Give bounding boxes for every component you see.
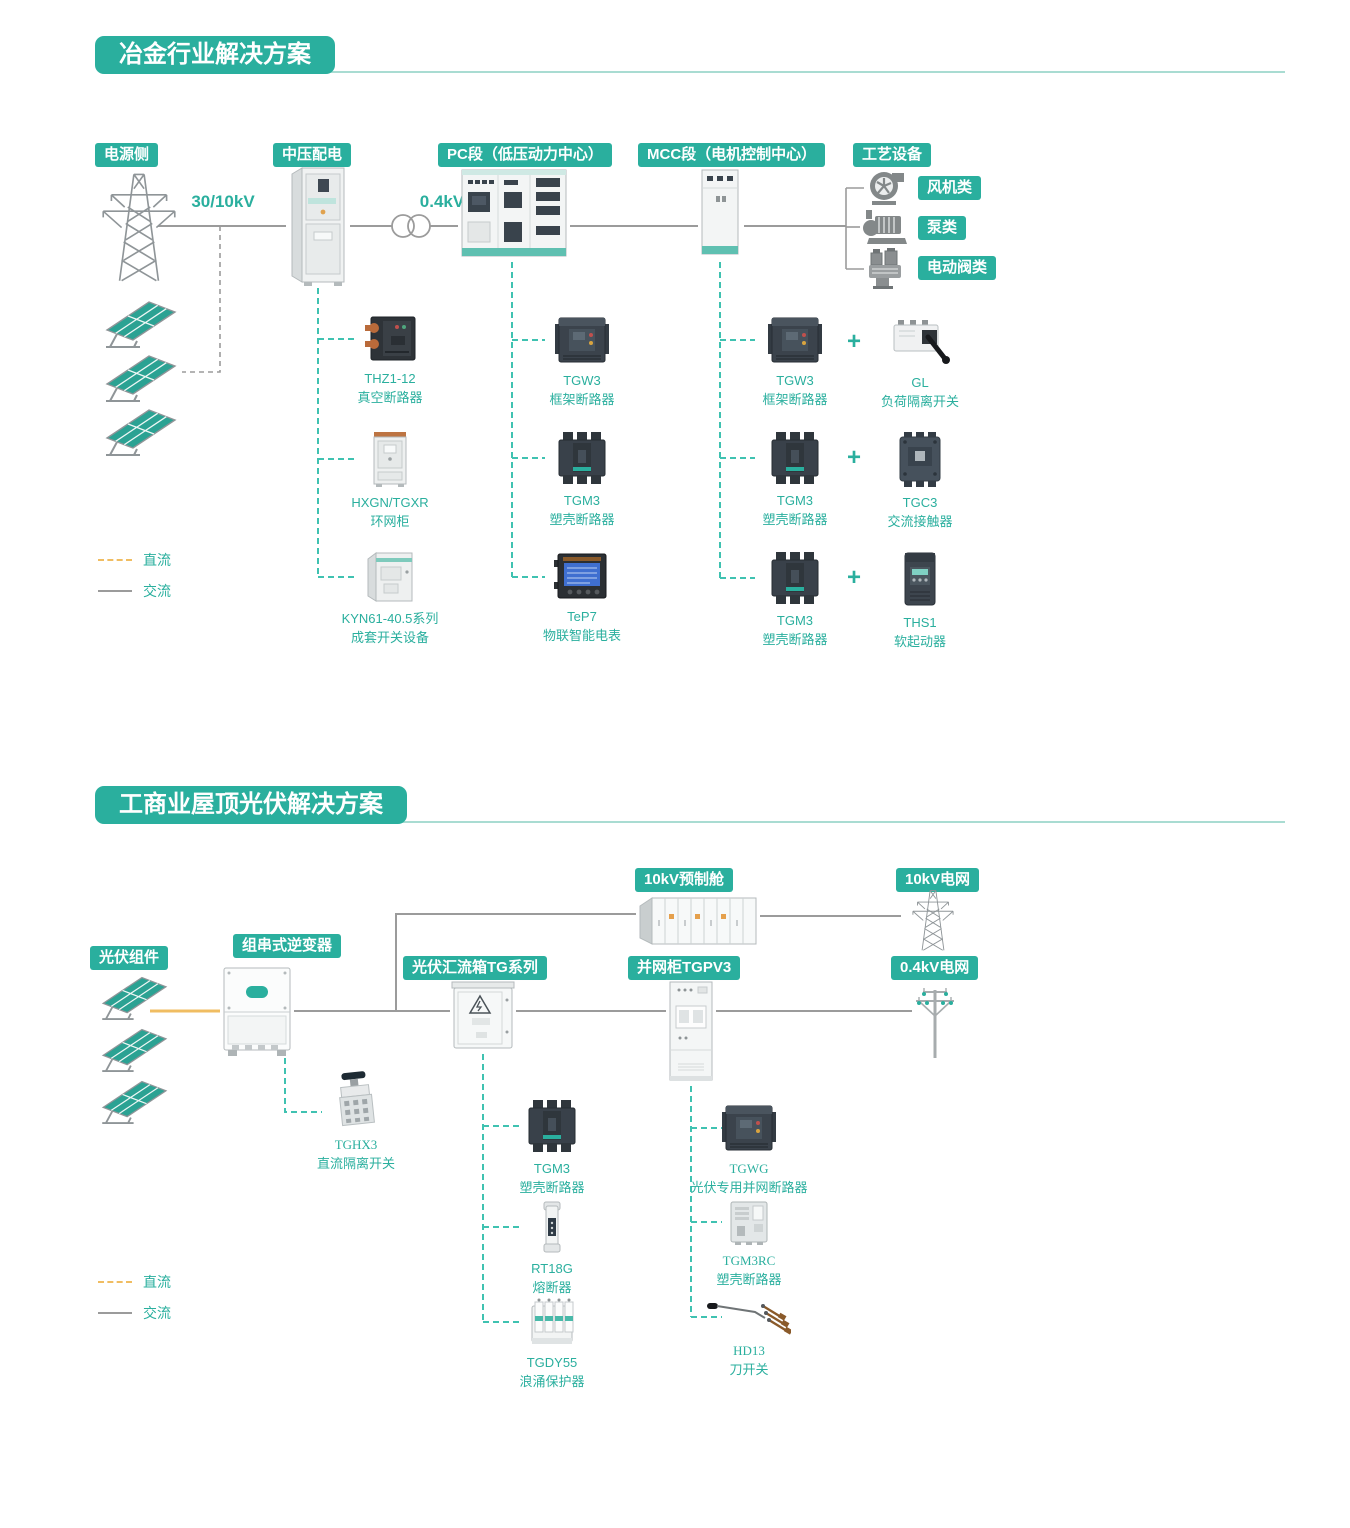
component-tgm3-mcc: TGM3塑壳断路器 — [745, 430, 845, 530]
component-name: 真空断路器 — [357, 389, 422, 408]
component-name: 成套开关设备 — [342, 629, 439, 648]
pump-icon — [860, 208, 908, 246]
component-tgdy55: TGDY55浪涌保护器 — [497, 1296, 607, 1392]
tag-mv-distribution: 中压配电 — [273, 143, 351, 167]
prefab-cabin-icon — [636, 892, 760, 950]
tag-electric-valves: 电动阀类 — [918, 256, 996, 280]
tag-combiner-box: 光伏汇流箱TG系列 — [403, 956, 547, 980]
component-model: THS1 — [894, 614, 946, 633]
smart-meter-icon — [554, 552, 610, 602]
component-name: 塑壳断路器 — [762, 511, 827, 530]
solar-panel-icon — [90, 972, 168, 1020]
component-tgw3-mcc: TGW3框架断路器 — [745, 314, 845, 410]
component-model: KYN61-40.5系列 — [342, 610, 439, 629]
component-tgm3-mcc: TGM3塑壳断路器 — [745, 550, 845, 650]
tag-pv-modules: 光伏组件 — [90, 946, 168, 970]
pv-dc-dashed-line — [182, 226, 220, 372]
tag-fans: 风机类 — [918, 176, 981, 200]
component-model: TGW3 — [549, 372, 614, 391]
component-tgm3rc: TGM3RC塑壳断路器 — [683, 1198, 815, 1290]
tag-grid-cabinet: 并网柜TGPV3 — [628, 956, 740, 980]
tag-pc-section: PC段（低压动力中心） — [438, 143, 612, 167]
component-name: 浪涌保护器 — [519, 1373, 584, 1392]
component-tep7: TeP7物联智能电表 — [527, 552, 637, 646]
solar-panel-icon — [93, 350, 177, 402]
component-tgm3-pc: TGM3塑壳断路器 — [527, 430, 637, 530]
legend: 直流 交流 — [98, 1272, 171, 1323]
component-name: 交流接触器 — [888, 513, 953, 532]
mcc-cabinet-icon — [698, 166, 744, 262]
component-model: TGM3 — [549, 492, 614, 511]
pv-grid-breaker-icon — [720, 1102, 778, 1154]
component-tgc3: TGC3交流接触器 — [865, 430, 975, 532]
component-model: TGM3 — [762, 492, 827, 511]
legend-dc-row: 直流 — [98, 1272, 171, 1292]
component-model: GL — [881, 374, 959, 393]
utility-pole-icon — [912, 982, 958, 1060]
tag-string-inverter: 组串式逆变器 — [233, 934, 341, 958]
section1-title-rule — [330, 71, 1285, 73]
legend-ac-label: 交流 — [143, 1303, 171, 1323]
legend-dc-row: 直流 — [98, 550, 171, 570]
tag-process-equipment: 工艺设备 — [853, 143, 931, 167]
voltage-incoming: 30/10kV — [183, 192, 263, 212]
knife-switch-icon — [707, 1298, 791, 1336]
ac-contactor-icon — [894, 430, 946, 488]
vacuum-breaker-icon — [361, 314, 419, 364]
component-tgm3-combiner: TGM3塑壳断路器 — [497, 1098, 607, 1198]
legend-dc-label: 直流 — [143, 1272, 171, 1292]
component-model: HXGN/TGXR — [351, 494, 428, 513]
component-model: THZ1-12 — [357, 370, 422, 389]
tag-grid-04kv: 0.4kV电网 — [891, 956, 978, 980]
mcc-pair-row: TGM3塑壳断路器 + TGC3交流接触器 — [745, 430, 975, 532]
surge-protector-icon — [528, 1296, 576, 1348]
grid-cabinet-icon — [666, 980, 716, 1086]
component-hd13: HD13刀开关 — [683, 1298, 815, 1380]
tag-pumps: 泵类 — [918, 216, 966, 240]
legend-ac-row: 交流 — [98, 1303, 171, 1323]
mcc-pair-row: TGW3框架断路器 + GL负荷隔离开关 — [745, 314, 975, 412]
component-name: 软起动器 — [894, 633, 946, 652]
solar-panel-icon — [93, 296, 177, 348]
component-model: TGM3 — [762, 612, 827, 631]
component-name: 框架断路器 — [762, 391, 827, 410]
legend-ac-row: 交流 — [98, 581, 171, 601]
solar-panel-icon — [93, 404, 177, 456]
combiner-box-icon — [450, 980, 516, 1054]
legend-ac-label: 交流 — [143, 581, 171, 601]
fuse-icon — [540, 1200, 564, 1254]
component-model: RT18G — [531, 1260, 573, 1279]
component-thz1-12: THZ1-12真空断路器 — [335, 314, 445, 408]
component-name: 负荷隔离开关 — [881, 393, 959, 412]
plus-sign: + — [847, 446, 861, 470]
component-name: 物联智能电表 — [543, 627, 621, 646]
section2-title: 工商业屋顶光伏解决方案 — [95, 786, 407, 824]
transformer-symbol — [392, 215, 430, 237]
ring-main-unit-icon — [368, 430, 412, 488]
molded-case-breaker-icon — [768, 430, 822, 486]
legend: 直流 交流 — [98, 550, 171, 601]
component-kyn61: KYN61-40.5系列成套开关设备 — [335, 550, 445, 648]
tag-power-side: 电源侧 — [95, 143, 158, 167]
dc-line-swatch — [98, 1281, 132, 1283]
air-circuit-breaker-icon — [766, 314, 824, 366]
air-circuit-breaker-icon — [553, 314, 611, 366]
component-hxgn-tgxr: HXGN/TGXR环网柜 — [335, 430, 445, 532]
component-name: 环网柜 — [351, 513, 428, 532]
transmission-tower-icon — [93, 166, 185, 284]
solar-panel-icon — [90, 1024, 168, 1072]
component-model: TGC3 — [888, 494, 953, 513]
valve-icon — [864, 248, 906, 290]
component-model: HD13 — [729, 1342, 768, 1361]
ac-line-swatch — [98, 1312, 132, 1314]
pc-switchgear-icon — [458, 166, 570, 262]
component-name: 塑壳断路器 — [762, 631, 827, 650]
connector-lines — [0, 0, 1350, 1528]
molded-case-breaker-icon — [727, 1198, 771, 1246]
plus-sign: + — [847, 330, 861, 354]
solar-panel-icon — [90, 1076, 168, 1124]
component-name: 塑壳断路器 — [549, 511, 614, 530]
component-name: 刀开关 — [729, 1361, 768, 1380]
molded-case-breaker-icon — [768, 550, 822, 606]
molded-case-breaker-icon — [555, 430, 609, 486]
component-model: TGHX3 — [317, 1136, 395, 1155]
switchgear-set-icon — [364, 550, 416, 604]
dc-line-swatch — [98, 559, 132, 561]
component-name: 熔断器 — [531, 1279, 573, 1298]
dc-isolation-switch-icon — [334, 1070, 378, 1130]
plus-sign: + — [847, 566, 861, 590]
component-name: 塑壳断路器 — [519, 1179, 584, 1198]
component-ths1: THS1软起动器 — [865, 550, 975, 652]
soft-starter-icon — [899, 550, 941, 608]
section1-title: 冶金行业解决方案 — [95, 36, 335, 74]
component-model: TGWG — [690, 1160, 807, 1179]
tag-prefab-cabin: 10kV预制舱 — [635, 868, 733, 892]
component-model: TeP7 — [543, 608, 621, 627]
component-tgw3-pc: TGW3框架断路器 — [527, 314, 637, 410]
component-tgwg: TGWG光伏专用并网断路器 — [683, 1102, 815, 1198]
mv-cabinet-icon — [286, 166, 350, 288]
component-model: TGW3 — [762, 372, 827, 391]
molded-case-breaker-icon — [525, 1098, 579, 1154]
load-isolation-switch-icon — [888, 318, 952, 368]
section2-title-rule — [400, 821, 1285, 823]
component-tghx3: TGHX3直流隔离开关 — [306, 1070, 406, 1174]
component-name: 光伏专用并网断路器 — [690, 1179, 807, 1198]
component-model: TGDY55 — [519, 1354, 584, 1373]
legend-dc-label: 直流 — [143, 550, 171, 570]
mcc-pair-row: TGM3塑壳断路器 + THS1软起动器 — [745, 550, 975, 652]
fan-icon — [864, 168, 908, 208]
component-name: 框架断路器 — [549, 391, 614, 410]
transmission-tower-icon — [903, 886, 963, 952]
ac-line-swatch — [98, 590, 132, 592]
component-model: TGM3RC — [716, 1252, 781, 1271]
component-rt18g: RT18G熔断器 — [497, 1200, 607, 1298]
component-name: 直流隔离开关 — [317, 1155, 395, 1174]
component-name: 塑壳断路器 — [716, 1271, 781, 1290]
component-gl: GL负荷隔离开关 — [865, 314, 975, 412]
component-model: TGM3 — [519, 1160, 584, 1179]
tag-mcc-section: MCC段（电机控制中心） — [638, 143, 825, 167]
string-inverter-icon — [220, 964, 294, 1058]
